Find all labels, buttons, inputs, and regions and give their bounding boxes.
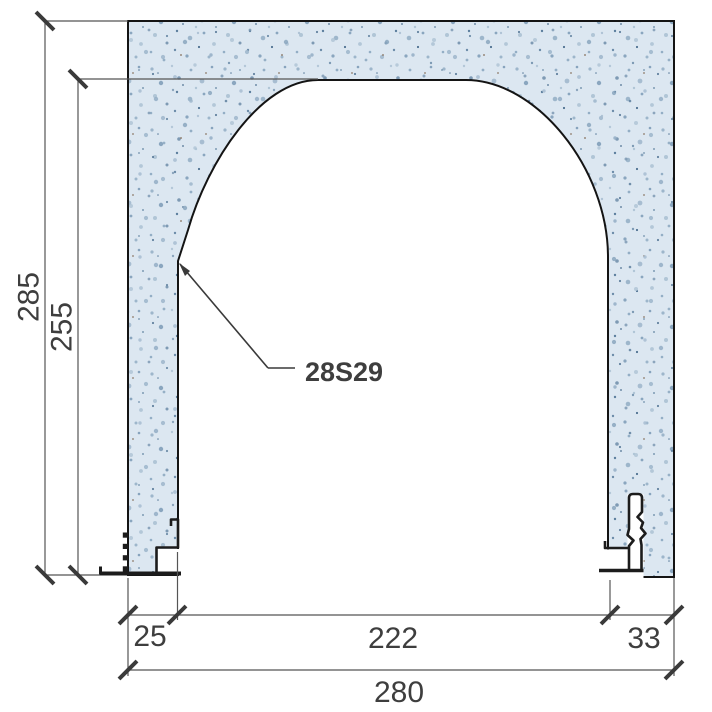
dim-label-right-jamb: 33 — [627, 622, 660, 655]
dim-label-total-height: 285 — [13, 272, 46, 322]
dim-label-opening-height: 255 — [46, 302, 79, 352]
labels: 285 255 25 222 33 280 28S29 — [13, 272, 661, 709]
section-drawing: 285 255 25 222 33 280 28S29 — [0, 0, 712, 712]
dim-label-left-jamb: 25 — [133, 620, 166, 653]
leader-line — [180, 264, 268, 368]
dim-label-opening-width: 222 — [368, 622, 418, 655]
leader-callout — [179, 263, 295, 368]
profile-left-rebate-gap — [156, 549, 180, 573]
technical-drawing-page: 285 255 25 222 33 280 28S29 — [0, 0, 712, 712]
profile-code-label: 28S29 — [305, 357, 383, 387]
profile-right-rebate-gap — [607, 550, 629, 579]
dim-label-total-width: 280 — [374, 676, 424, 709]
